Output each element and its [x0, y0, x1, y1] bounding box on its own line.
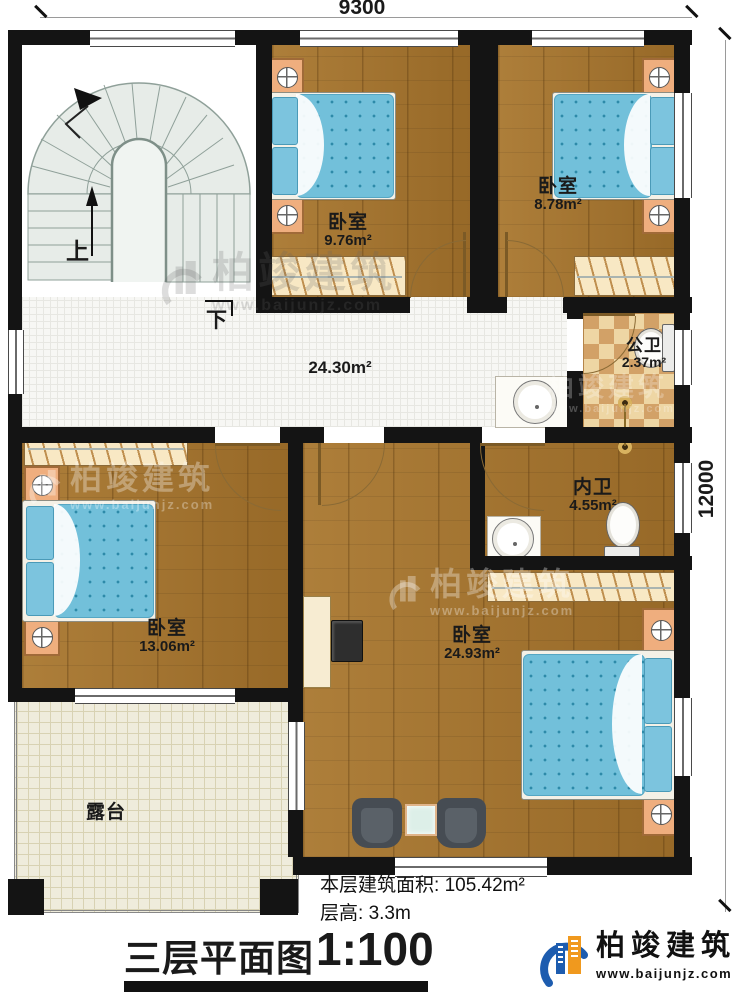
window [674, 463, 692, 533]
pillow [272, 97, 298, 145]
room-label-master: 卧室 24.93m² [444, 625, 500, 663]
dimension-top-value: 9300 [312, 0, 412, 20]
brand-site: www.baijunjz.com [596, 966, 736, 981]
nightstand [24, 618, 60, 656]
door-leaf [318, 443, 321, 505]
nightstand [270, 196, 304, 234]
wall-under-bedrooms [563, 297, 692, 313]
wall-hall-bottom [8, 427, 215, 443]
brand-logo: 柏竣建筑 www.baijunjz.com [540, 932, 736, 988]
closet-rail [492, 587, 672, 589]
stair-down-label: 下 [206, 304, 227, 334]
room-label-terrace: 露台 [86, 802, 126, 823]
floor-area-label: 本层建筑面积: [320, 875, 439, 896]
stair-up-label: 上 [66, 232, 89, 266]
room-label-bedroom-tr: 卧室 8.78m² [534, 176, 582, 214]
lamp-icon [277, 67, 298, 88]
floor-area-line: 本层建筑面积: 105.42m² [320, 870, 525, 897]
wall-terrace-top [8, 688, 75, 702]
brand-name: 柏竣建筑 [596, 932, 736, 961]
chair-seat [445, 808, 477, 843]
window [300, 30, 458, 47]
floor-height-line: 层高: 3.3m [320, 898, 411, 925]
dimension-tick [34, 5, 47, 18]
title-underline [124, 981, 428, 992]
wall-under-bedrooms [467, 297, 507, 313]
window [674, 698, 692, 776]
dimension-tick [718, 27, 731, 40]
pillow [644, 726, 672, 792]
room-label-inner-bath: 内卫 4.55m² [569, 477, 617, 515]
wall-bedroom-divider [470, 44, 498, 297]
brand-logo-icon [540, 932, 588, 988]
dimension-right-value: 12000 [695, 444, 719, 534]
wall-under-bedrooms [256, 297, 410, 313]
tv-cabinet [303, 596, 331, 688]
wardrobe [574, 256, 678, 296]
wall-terrace-top [235, 688, 303, 702]
lamp-icon [651, 620, 672, 641]
sink-drain [513, 542, 517, 546]
lamp-icon [649, 205, 670, 226]
wall-hall-bottom [280, 427, 324, 443]
dimension-line-right [725, 40, 726, 912]
tv [331, 620, 363, 662]
inner-bath-sink [492, 518, 534, 560]
nightstand [642, 58, 676, 96]
side-table [405, 804, 437, 836]
lamp-icon [649, 67, 670, 88]
pillow [26, 562, 54, 616]
window [75, 688, 235, 704]
vanity-sink [513, 380, 557, 424]
lamp-icon [651, 804, 672, 825]
stair-down-tick [205, 300, 233, 302]
wall-hall-bottom [545, 427, 692, 443]
floor-height-value: 3.3m [369, 903, 411, 924]
lamp-icon [32, 627, 53, 648]
window [288, 722, 305, 810]
nightstand [642, 196, 676, 234]
pillow [272, 147, 298, 195]
wall-hall-bottom [384, 427, 482, 443]
nightstand [270, 58, 304, 96]
wardrobe-rail [270, 276, 403, 278]
dimension-tick [685, 5, 698, 18]
room-label-hallway: 24.30m² [308, 358, 371, 377]
terrace-floor [14, 700, 299, 913]
plan-title: 三层平面图 [124, 928, 314, 982]
wall-stair-bedroom [256, 44, 272, 297]
floor-plan-page: 上 下 [0, 0, 750, 1002]
pillow [650, 147, 676, 195]
terrace-post [260, 879, 298, 915]
terrace-post [8, 879, 44, 915]
wardrobe-rail [577, 276, 675, 278]
chair-seat [361, 808, 393, 843]
pillow [26, 506, 54, 560]
lamp-icon [277, 205, 298, 226]
wardrobe [266, 256, 406, 296]
spiral-staircase [22, 44, 256, 300]
window [90, 30, 235, 47]
wardrobe-rail [28, 448, 184, 450]
wall-public-bath-left [567, 313, 583, 319]
window [674, 330, 692, 385]
plan-scale: 1:100 [316, 922, 434, 976]
stair-down-tick2 [231, 300, 233, 316]
window [674, 93, 692, 198]
sink-drain [535, 405, 539, 409]
floor-height-label: 层高: [320, 903, 363, 924]
room-label-public-bath: 公卫 2.37m² [622, 336, 666, 371]
wall-inner-bath-bottom [470, 556, 692, 570]
wall-public-bath-left [567, 371, 583, 427]
lamp-icon [32, 475, 53, 496]
hallway-floor [22, 297, 567, 427]
chair [352, 798, 402, 848]
room-label-bedroom-left: 卧室 13.06m² [139, 618, 195, 656]
chair [436, 798, 486, 848]
window [8, 330, 24, 394]
nightstand [24, 466, 60, 504]
room-label-bedroom-tl: 卧室 9.76m² [324, 212, 372, 250]
pillow [644, 658, 672, 724]
floor-area-value: 105.42m² [445, 875, 525, 896]
pillow [650, 97, 676, 145]
window [532, 30, 644, 47]
closet [487, 572, 676, 602]
